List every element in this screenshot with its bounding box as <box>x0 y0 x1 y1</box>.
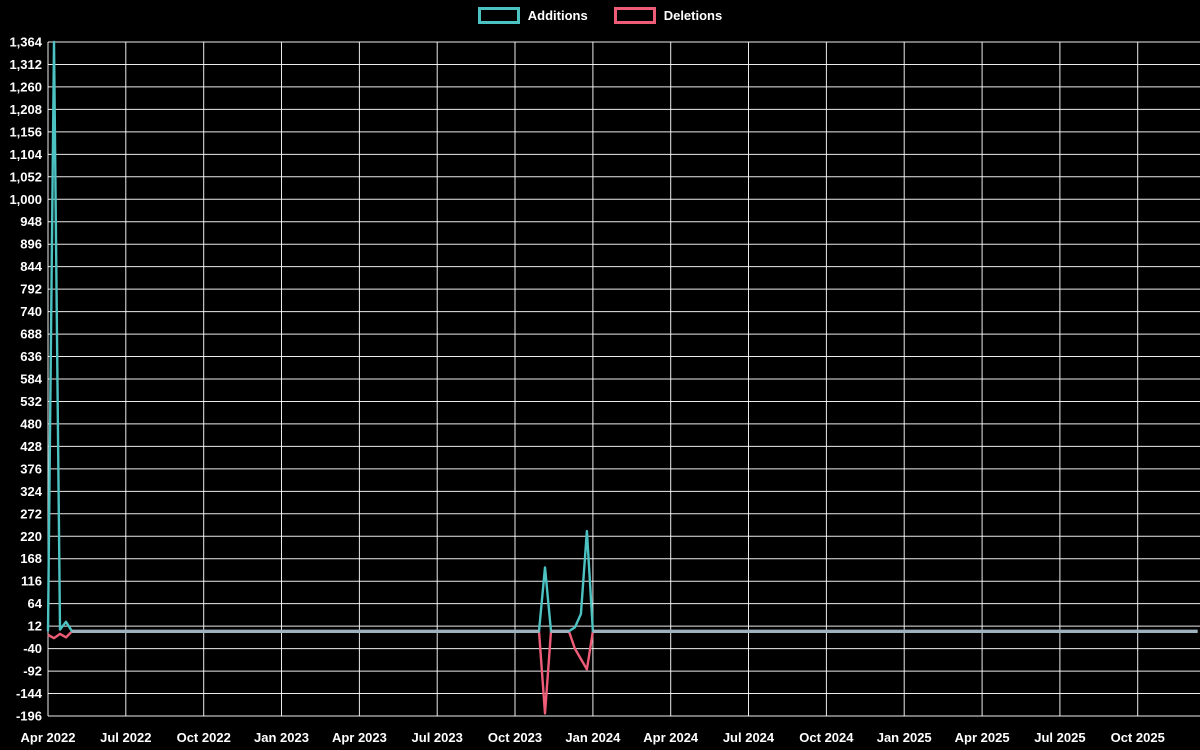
svg-text:Apr 2025: Apr 2025 <box>955 730 1010 745</box>
svg-text:Jan 2025: Jan 2025 <box>877 730 932 745</box>
svg-text:480: 480 <box>20 416 42 431</box>
svg-text:636: 636 <box>20 349 42 364</box>
svg-text:-40: -40 <box>23 641 42 656</box>
svg-text:Oct 2022: Oct 2022 <box>177 730 231 745</box>
svg-text:1,000: 1,000 <box>9 192 42 207</box>
legend-label-additions: Additions <box>528 9 588 22</box>
svg-text:Jan 2024: Jan 2024 <box>565 730 621 745</box>
svg-text:-92: -92 <box>23 664 42 679</box>
svg-text:428: 428 <box>20 439 42 454</box>
svg-text:1,364: 1,364 <box>9 35 42 50</box>
deletions-line <box>48 631 1198 713</box>
svg-text:Jul 2025: Jul 2025 <box>1034 730 1085 745</box>
svg-text:1,156: 1,156 <box>9 124 42 139</box>
svg-text:220: 220 <box>20 529 42 544</box>
additions-line <box>48 42 1198 631</box>
svg-text:688: 688 <box>20 327 42 342</box>
svg-text:324: 324 <box>20 484 42 499</box>
chart-legend: Additions Deletions <box>0 7 1200 24</box>
svg-text:Apr 2022: Apr 2022 <box>21 730 76 745</box>
svg-text:376: 376 <box>20 461 42 476</box>
svg-text:116: 116 <box>21 574 42 589</box>
svg-text:Jul 2023: Jul 2023 <box>412 730 463 745</box>
svg-text:792: 792 <box>20 282 42 297</box>
svg-text:Jul 2024: Jul 2024 <box>723 730 775 745</box>
additions-swatch-icon <box>478 7 520 24</box>
svg-text:1,312: 1,312 <box>9 57 42 72</box>
chart-plot-area: -196-144-92-4012641161682202723243764284… <box>0 0 1200 750</box>
legend-item-deletions[interactable]: Deletions <box>614 7 723 24</box>
svg-text:Apr 2024: Apr 2024 <box>643 730 699 745</box>
legend-label-deletions: Deletions <box>664 9 723 22</box>
svg-text:1,208: 1,208 <box>9 102 42 117</box>
svg-text:-196: -196 <box>16 709 42 724</box>
svg-text:Oct 2025: Oct 2025 <box>1111 730 1165 745</box>
svg-text:844: 844 <box>20 259 42 274</box>
svg-text:532: 532 <box>20 394 42 409</box>
svg-text:Oct 2024: Oct 2024 <box>799 730 854 745</box>
svg-text:1,260: 1,260 <box>9 79 42 94</box>
svg-text:-144: -144 <box>16 686 43 701</box>
svg-text:168: 168 <box>20 551 42 566</box>
svg-text:Jan 2023: Jan 2023 <box>254 730 309 745</box>
svg-text:272: 272 <box>20 506 42 521</box>
svg-text:1,052: 1,052 <box>9 169 42 184</box>
svg-text:584: 584 <box>20 372 42 387</box>
svg-text:1,104: 1,104 <box>9 147 42 162</box>
svg-text:Apr 2023: Apr 2023 <box>332 730 387 745</box>
code-frequency-chart: Additions Deletions -196-144-92-40126411… <box>0 0 1200 750</box>
svg-text:896: 896 <box>20 237 42 252</box>
svg-text:64: 64 <box>28 596 43 611</box>
y-grid-and-ticks: -196-144-92-4012641161682202723243764284… <box>9 35 1200 724</box>
svg-text:Oct 2023: Oct 2023 <box>488 730 542 745</box>
svg-text:12: 12 <box>28 619 42 634</box>
deletions-swatch-icon <box>614 7 656 24</box>
svg-text:740: 740 <box>20 304 42 319</box>
svg-text:948: 948 <box>20 214 42 229</box>
svg-text:Jul 2022: Jul 2022 <box>100 730 151 745</box>
legend-item-additions[interactable]: Additions <box>478 7 588 24</box>
